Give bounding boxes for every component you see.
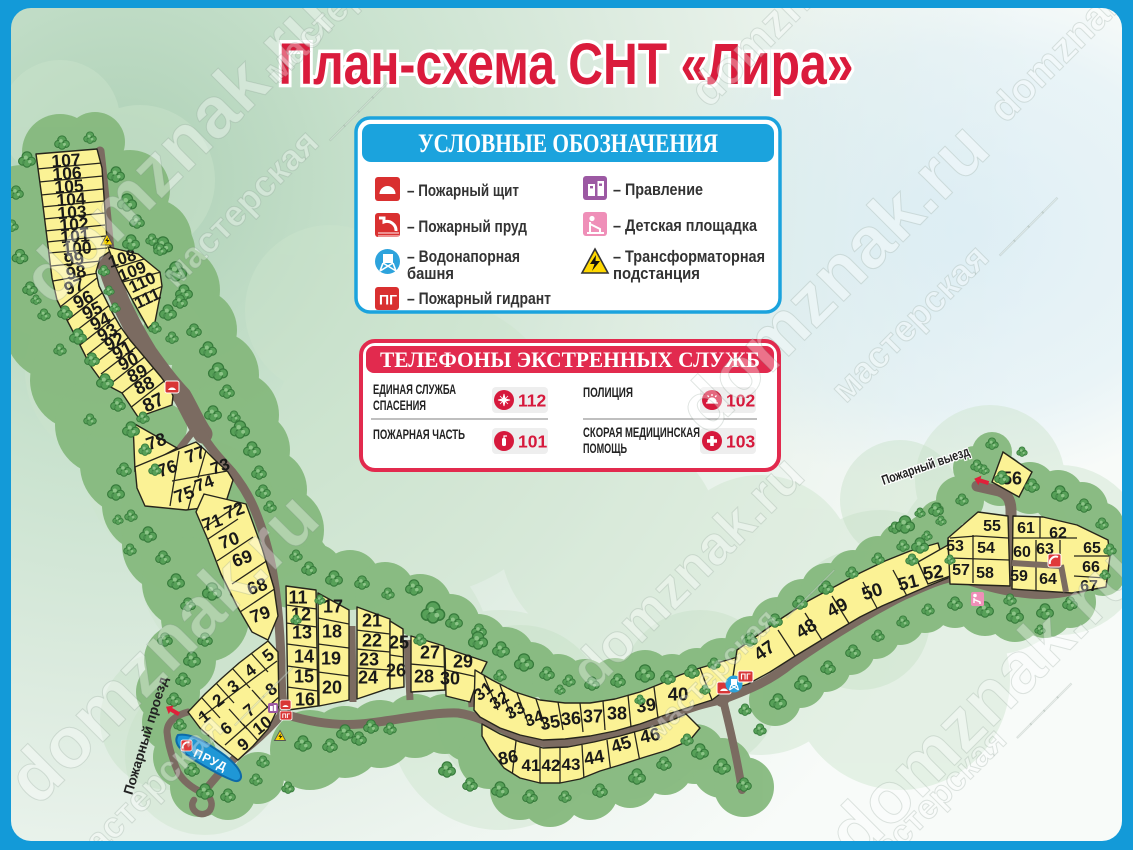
svg-text:ПГ: ПГ [740, 673, 751, 682]
svg-text:55: 55 [983, 518, 1001, 535]
svg-text:27: 27 [420, 643, 440, 663]
svg-text:– Детская площадка: – Детская площадка [613, 216, 757, 235]
svg-text:35: 35 [538, 711, 561, 734]
svg-text:ПОМОЩЬ: ПОМОЩЬ [583, 441, 627, 456]
svg-text:101: 101 [518, 432, 547, 452]
svg-text:61: 61 [1017, 520, 1035, 537]
svg-text:УСЛОВНЫЕ ОБОЗНАЧЕНИЯ: УСЛОВНЫЕ ОБОЗНАЧЕНИЯ [418, 129, 718, 158]
svg-text:59: 59 [1010, 568, 1028, 585]
svg-text:60: 60 [1013, 544, 1031, 561]
svg-text:– Правление: – Правление [613, 180, 703, 199]
svg-text:37: 37 [583, 707, 603, 727]
svg-text:14: 14 [294, 647, 314, 667]
svg-text:86: 86 [496, 746, 519, 769]
svg-text:24: 24 [358, 668, 378, 688]
svg-text:– Пожарный гидрант: – Пожарный гидрант [407, 289, 551, 308]
svg-text:башня: башня [407, 264, 454, 283]
svg-text:СКОРАЯ МЕДИЦИНСКАЯ: СКОРАЯ МЕДИЦИНСКАЯ [583, 425, 700, 440]
svg-text:– Пожарный пруд: – Пожарный пруд [407, 217, 527, 236]
svg-text:30: 30 [440, 669, 460, 689]
svg-text:62: 62 [1049, 525, 1067, 542]
svg-text:17: 17 [323, 597, 343, 617]
svg-text:42: 42 [542, 756, 561, 775]
svg-text:43: 43 [562, 755, 581, 774]
svg-text:22: 22 [362, 631, 382, 651]
svg-text:ПОЛИЦИЯ: ПОЛИЦИЯ [583, 385, 633, 400]
svg-text:ПГ: ПГ [282, 713, 291, 720]
svg-text:15: 15 [294, 667, 314, 687]
svg-text:58: 58 [976, 565, 994, 582]
svg-text:112: 112 [518, 391, 546, 411]
svg-text:19: 19 [321, 649, 341, 669]
svg-text:20: 20 [322, 678, 342, 698]
svg-text:– Пожарный щит: – Пожарный щит [407, 181, 519, 200]
svg-text:ЕДИНАЯ СЛУЖБА: ЕДИНАЯ СЛУЖБА [373, 382, 456, 397]
svg-text:13: 13 [292, 623, 312, 643]
svg-text:подстанция: подстанция [613, 264, 700, 283]
svg-text:21: 21 [362, 611, 382, 631]
svg-text:38: 38 [607, 704, 627, 724]
svg-text:36: 36 [560, 708, 582, 730]
svg-text:54: 54 [977, 540, 995, 557]
svg-text:26: 26 [386, 661, 406, 681]
svg-text:53: 53 [946, 538, 964, 555]
svg-text:16: 16 [295, 690, 315, 710]
svg-text:57: 57 [952, 562, 970, 579]
svg-text:23: 23 [359, 650, 379, 670]
svg-text:41: 41 [522, 756, 541, 775]
svg-text:СПАСЕНИЯ: СПАСЕНИЯ [373, 398, 426, 413]
svg-text:ПГ: ПГ [379, 292, 397, 308]
svg-text:18: 18 [322, 622, 342, 642]
svg-text:52: 52 [921, 560, 944, 584]
svg-text:25: 25 [389, 633, 409, 653]
svg-text:ПОЖАРНАЯ ЧАСТЬ: ПОЖАРНАЯ ЧАСТЬ [373, 427, 465, 442]
svg-text:28: 28 [414, 667, 434, 687]
svg-text:44: 44 [582, 746, 605, 769]
